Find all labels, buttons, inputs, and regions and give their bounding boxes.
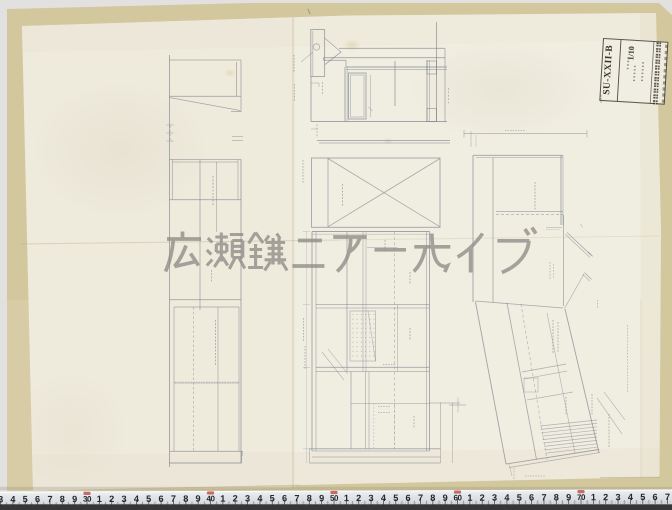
svg-text:3: 3 xyxy=(492,493,497,503)
svg-text:2: 2 xyxy=(109,494,114,504)
svg-text:8: 8 xyxy=(183,494,188,504)
svg-text:9: 9 xyxy=(443,493,448,503)
svg-text:5: 5 xyxy=(146,494,151,504)
svg-text:40: 40 xyxy=(207,494,216,503)
svg-text:6: 6 xyxy=(282,493,287,503)
svg-text:7: 7 xyxy=(418,493,423,503)
svg-text:9: 9 xyxy=(566,492,571,502)
svg-text:6: 6 xyxy=(406,493,411,503)
svg-text:7: 7 xyxy=(47,494,52,504)
svg-text:1: 1 xyxy=(97,494,102,504)
svg-text:5: 5 xyxy=(640,492,645,502)
svg-text:3: 3 xyxy=(369,493,374,503)
svg-text:1: 1 xyxy=(467,493,472,503)
svg-text:6: 6 xyxy=(653,492,658,502)
svg-text:2: 2 xyxy=(356,493,361,503)
svg-text:30: 30 xyxy=(83,495,92,504)
svg-text:4: 4 xyxy=(504,493,510,503)
svg-text:5: 5 xyxy=(23,494,28,504)
svg-text:60: 60 xyxy=(454,493,463,502)
svg-text:8: 8 xyxy=(554,492,559,502)
svg-text:3: 3 xyxy=(0,494,3,504)
svg-text:9: 9 xyxy=(196,494,201,504)
svg-text:7: 7 xyxy=(294,493,299,503)
svg-text:2: 2 xyxy=(233,494,238,504)
svg-text:1: 1 xyxy=(591,492,596,502)
svg-text:5: 5 xyxy=(393,493,398,503)
svg-text:4: 4 xyxy=(134,494,140,504)
svg-text:4: 4 xyxy=(381,493,387,503)
svg-text:9: 9 xyxy=(319,493,324,503)
svg-text:8: 8 xyxy=(307,493,312,503)
svg-text:8: 8 xyxy=(60,494,65,504)
svg-text:8: 8 xyxy=(430,493,435,503)
svg-text:6: 6 xyxy=(35,494,40,504)
svg-text:1: 1 xyxy=(344,493,349,503)
svg-text:50: 50 xyxy=(330,494,339,503)
svg-text:5: 5 xyxy=(517,493,522,503)
svg-text:3: 3 xyxy=(245,494,250,504)
svg-text:3: 3 xyxy=(121,494,126,504)
svg-text:3: 3 xyxy=(616,492,621,502)
svg-text:5: 5 xyxy=(270,493,275,503)
svg-text:4: 4 xyxy=(10,494,16,504)
svg-text:7: 7 xyxy=(171,494,176,504)
svg-text:6: 6 xyxy=(159,494,164,504)
svg-text:1: 1 xyxy=(220,494,225,504)
svg-text:7: 7 xyxy=(541,492,546,502)
svg-text:2: 2 xyxy=(480,493,485,503)
svg-text:4: 4 xyxy=(628,492,634,502)
svg-text:70: 70 xyxy=(577,493,586,502)
svg-text:4: 4 xyxy=(257,493,263,503)
svg-text:6: 6 xyxy=(529,493,534,503)
svg-text:9: 9 xyxy=(72,494,77,504)
svg-text:7: 7 xyxy=(665,492,670,502)
svg-text:2: 2 xyxy=(603,492,608,502)
